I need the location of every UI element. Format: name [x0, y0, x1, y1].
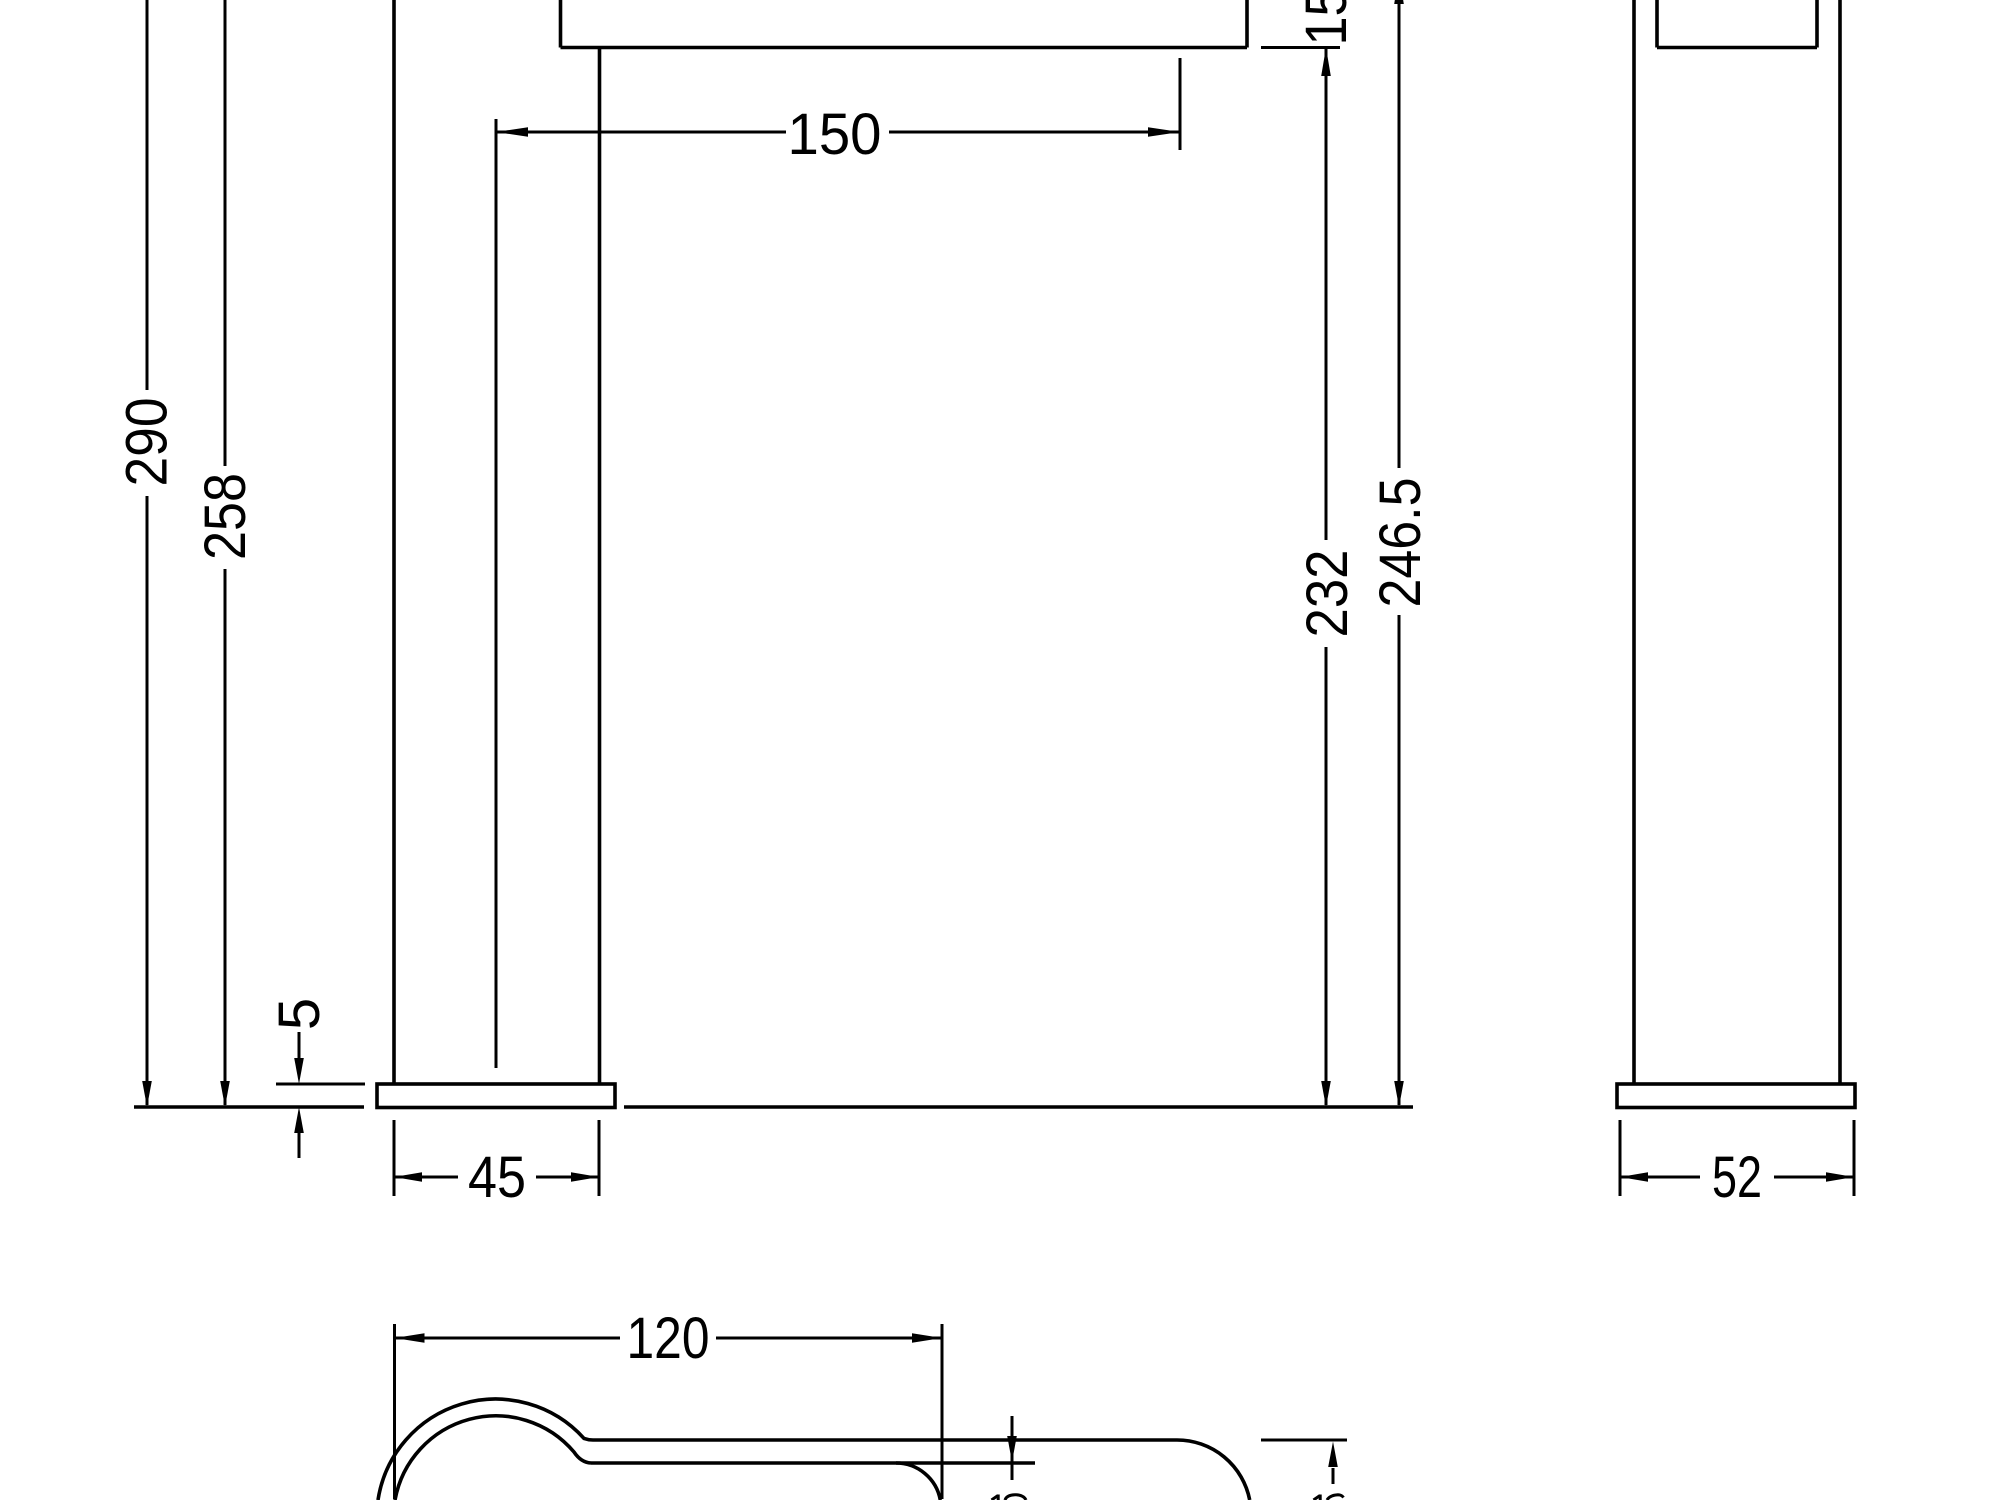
svg-text:232: 232	[1295, 550, 1360, 638]
svg-text:15: 15	[1294, 0, 1359, 46]
svg-text:258: 258	[193, 473, 258, 560]
svg-text:45: 45	[468, 1145, 526, 1210]
svg-text:290: 290	[115, 398, 180, 487]
svg-text:120: 120	[627, 1306, 710, 1371]
svg-text:246.5: 246.5	[1368, 478, 1433, 608]
svg-text:150: 150	[788, 102, 882, 167]
svg-text:5: 5	[267, 998, 332, 1030]
svg-text:52: 52	[1712, 1145, 1762, 1210]
